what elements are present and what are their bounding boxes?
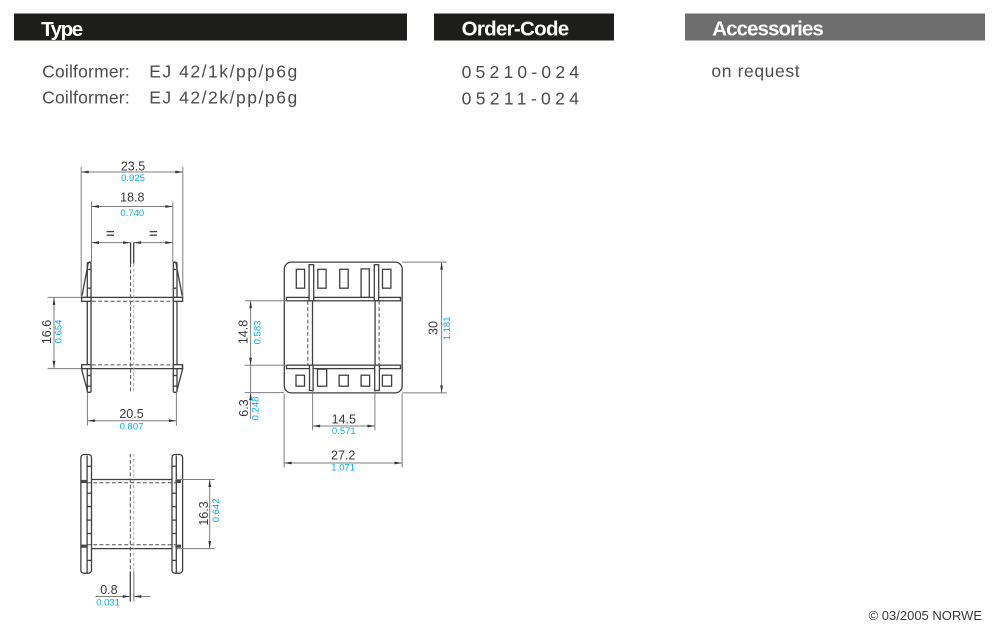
svg-text:Coilformer:: Coilformer: [42, 88, 130, 108]
svg-text:05211-024: 05211-024 [462, 89, 580, 109]
svg-text:Accessories: Accessories [712, 17, 824, 40]
svg-text:Coilformer:: Coilformer: [42, 62, 130, 82]
svg-text:on request: on request [711, 61, 799, 81]
svg-text:20.5: 20.5 [119, 407, 143, 421]
svg-text:14.8: 14.8 [236, 320, 250, 344]
svg-text:0.740: 0.740 [120, 208, 144, 219]
svg-text:1.181: 1.181 [442, 317, 453, 341]
svg-text:16.3: 16.3 [197, 501, 211, 525]
svg-text:Type: Type [41, 18, 83, 41]
svg-text:1.071: 1.071 [331, 463, 355, 474]
svg-text:14.5: 14.5 [332, 412, 356, 426]
svg-text:0.642: 0.642 [211, 499, 222, 523]
svg-text:0.248: 0.248 [250, 397, 261, 421]
svg-text:0.654: 0.654 [53, 320, 64, 344]
svg-text:6.3: 6.3 [237, 399, 251, 416]
svg-text:0.8: 0.8 [100, 583, 117, 597]
svg-text:EJ 42/1k/pp/p6g: EJ 42/1k/pp/p6g [149, 62, 297, 82]
svg-text:0.583: 0.583 [253, 321, 264, 345]
svg-text:27.2: 27.2 [331, 449, 355, 463]
svg-text:18.8: 18.8 [120, 190, 144, 204]
svg-text:0.031: 0.031 [96, 597, 120, 608]
svg-text:23.5: 23.5 [121, 159, 145, 173]
svg-text:Order-Code: Order-Code [462, 18, 570, 41]
svg-text:© 03/2005 NORWE: © 03/2005 NORWE [869, 608, 983, 623]
svg-text:16.6: 16.6 [40, 320, 54, 344]
svg-text:0.807: 0.807 [120, 421, 144, 432]
svg-text:0.571: 0.571 [332, 426, 356, 437]
svg-text:EJ 42/2k/pp/p6g: EJ 42/2k/pp/p6g [149, 88, 297, 108]
svg-text:0.925: 0.925 [121, 173, 145, 184]
svg-text:30: 30 [427, 321, 441, 335]
svg-text:05210-024: 05210-024 [462, 62, 580, 82]
